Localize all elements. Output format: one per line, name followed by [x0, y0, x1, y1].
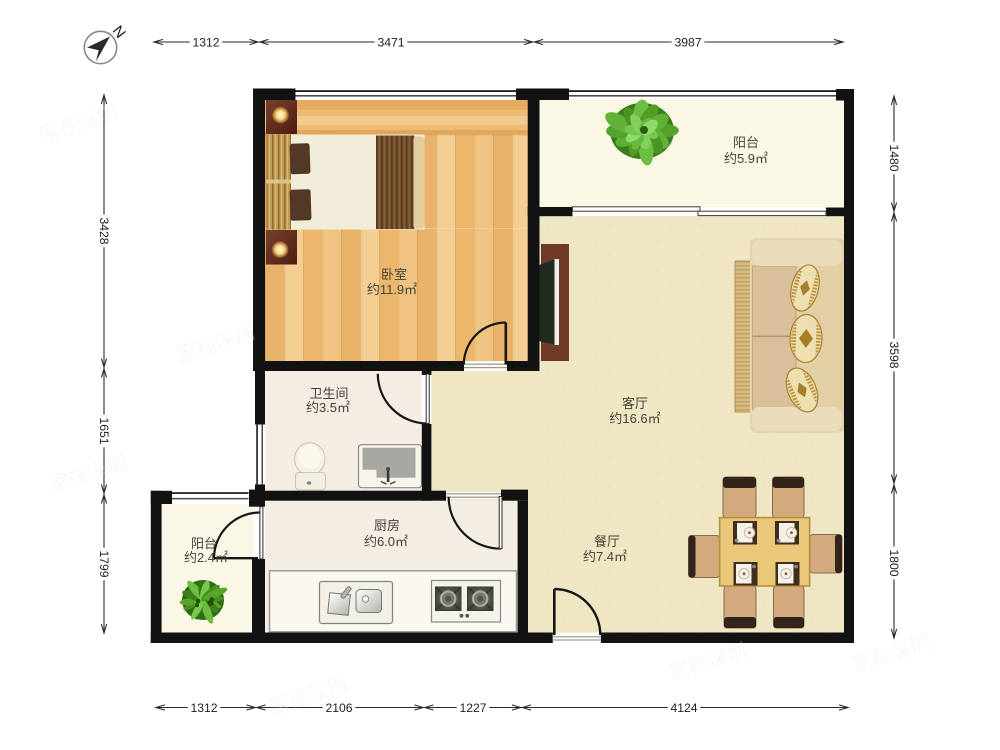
svg-text:家在深圳: 家在深圳	[174, 321, 257, 368]
svg-text:约11.9㎡: 约11.9㎡	[367, 282, 417, 297]
svg-text:3471: 3471	[377, 35, 404, 49]
svg-text:约6.0㎡: 约6.0㎡	[364, 534, 408, 549]
svg-text:1651: 1651	[97, 417, 111, 444]
svg-text:1312: 1312	[190, 701, 217, 715]
svg-text:约16.6㎡: 约16.6㎡	[609, 411, 660, 426]
svg-text:4124: 4124	[670, 701, 697, 715]
svg-text:餐厅: 餐厅	[594, 534, 620, 549]
svg-text:家在深圳: 家在深圳	[666, 639, 749, 686]
svg-text:3598: 3598	[887, 341, 901, 368]
svg-text:1800: 1800	[887, 549, 901, 576]
svg-text:厨房: 厨房	[374, 518, 400, 533]
svg-text:3987: 3987	[674, 35, 701, 49]
svg-text:家在深圳: 家在深圳	[849, 631, 932, 678]
svg-text:约2.4㎡: 约2.4㎡	[184, 550, 228, 565]
svg-text:3428: 3428	[97, 217, 111, 244]
svg-text:卫生间: 卫生间	[309, 386, 348, 401]
svg-text:约7.4㎡: 约7.4㎡	[583, 549, 627, 564]
svg-text:阳台: 阳台	[733, 135, 759, 150]
svg-text:1480: 1480	[887, 144, 901, 171]
svg-text:阳台: 阳台	[191, 536, 217, 551]
svg-text:卧室: 卧室	[381, 267, 407, 282]
svg-text:家在深圳: 家在深圳	[46, 451, 129, 498]
svg-text:约5.9㎡: 约5.9㎡	[724, 151, 768, 166]
svg-text:2106: 2106	[325, 701, 352, 715]
svg-text:约3.5㎡: 约3.5㎡	[306, 400, 350, 415]
svg-text:1799: 1799	[97, 550, 111, 577]
svg-text:客厅: 客厅	[622, 396, 648, 411]
svg-text:1227: 1227	[459, 701, 486, 715]
svg-text:1312: 1312	[192, 35, 219, 49]
svg-text:家在深圳: 家在深圳	[36, 101, 119, 148]
